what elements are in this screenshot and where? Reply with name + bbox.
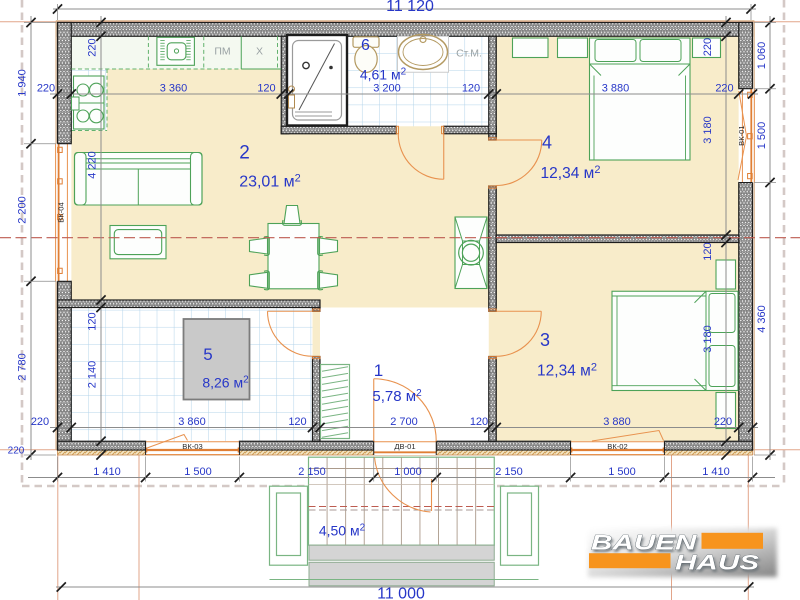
svg-text:4 360: 4 360: [756, 305, 768, 333]
svg-text:220: 220: [715, 83, 733, 95]
svg-text:2 150: 2 150: [495, 466, 523, 478]
svg-text:220: 220: [702, 38, 714, 56]
svg-text:2: 2: [239, 143, 250, 164]
svg-text:2 150: 2 150: [298, 466, 326, 478]
svg-text:4,61 м2: 4,61 м2: [360, 67, 407, 83]
svg-text:2 200: 2 200: [17, 196, 29, 224]
svg-text:X: X: [256, 46, 263, 58]
svg-text:1 500: 1 500: [184, 466, 212, 478]
svg-text:220: 220: [714, 416, 732, 428]
svg-text:12,34 м2: 12,34 м2: [541, 164, 601, 182]
svg-text:4 220: 4 220: [87, 151, 99, 179]
svg-text:1 060: 1 060: [756, 42, 768, 70]
svg-text:3 200: 3 200: [373, 83, 401, 95]
svg-text:1 410: 1 410: [702, 466, 730, 478]
svg-text:1 410: 1 410: [93, 466, 121, 478]
svg-text:Ст.М.: Ст.М.: [456, 48, 482, 60]
svg-text:ПМ: ПМ: [214, 46, 230, 58]
svg-text:23,01 м2: 23,01 м2: [239, 173, 301, 191]
svg-text:120: 120: [470, 416, 488, 428]
svg-text:220: 220: [8, 446, 25, 457]
svg-text:3 180: 3 180: [702, 116, 714, 144]
svg-text:1 940: 1 940: [17, 69, 29, 97]
svg-text:2 780: 2 780: [17, 353, 29, 381]
svg-text:120: 120: [462, 83, 480, 95]
svg-text:8,26 м2: 8,26 м2: [202, 375, 249, 391]
svg-text:3 880: 3 880: [602, 83, 630, 95]
svg-text:3 860: 3 860: [178, 416, 206, 428]
svg-text:ВК-02: ВК-02: [607, 442, 627, 451]
svg-text:220: 220: [87, 38, 99, 56]
svg-text:220: 220: [37, 83, 55, 95]
svg-text:4: 4: [542, 133, 552, 153]
svg-text:120: 120: [702, 242, 714, 260]
svg-text:120: 120: [288, 416, 306, 428]
svg-text:11 120: 11 120: [386, 0, 434, 15]
svg-text:5: 5: [203, 345, 212, 364]
svg-text:1 000: 1 000: [394, 466, 422, 478]
svg-text:HAUS: HAUS: [675, 551, 759, 574]
svg-text:3: 3: [540, 330, 550, 350]
svg-text:ДВ-01: ДВ-01: [394, 442, 415, 451]
svg-text:1: 1: [374, 361, 383, 380]
svg-text:2 700: 2 700: [390, 416, 418, 428]
svg-text:ВК-01: ВК-01: [737, 125, 746, 145]
svg-text:12,34 м2: 12,34 м2: [537, 362, 597, 380]
svg-text:6: 6: [361, 37, 370, 54]
svg-text:11 000: 11 000: [377, 586, 425, 600]
svg-text:120: 120: [87, 312, 99, 330]
svg-text:ВК-03: ВК-03: [182, 442, 202, 451]
svg-text:3 880: 3 880: [603, 416, 631, 428]
svg-text:4,50 м2: 4,50 м2: [319, 523, 366, 539]
svg-text:5,78 м2: 5,78 м2: [372, 388, 422, 405]
svg-text:3 180: 3 180: [702, 325, 714, 353]
svg-text:120: 120: [257, 83, 275, 95]
svg-text:1 500: 1 500: [608, 466, 636, 478]
svg-text:3 360: 3 360: [160, 83, 188, 95]
svg-text:220: 220: [31, 416, 49, 428]
svg-text:1 500: 1 500: [756, 122, 768, 150]
svg-text:2 140: 2 140: [87, 361, 99, 389]
svg-text:ВК-04: ВК-04: [57, 202, 66, 222]
